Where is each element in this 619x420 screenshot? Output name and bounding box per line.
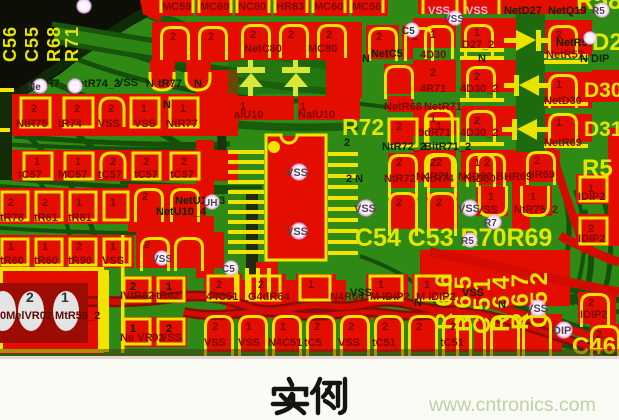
svg-text:NetR69: NetR69 — [544, 137, 582, 149]
svg-text:1: 1 — [34, 156, 40, 168]
svg-text:2: 2 — [8, 197, 14, 209]
svg-text:tC57: tC57 — [170, 169, 194, 181]
svg-text:2: 2 — [474, 71, 480, 83]
svg-text:G4dR64: G4dR64 — [248, 291, 290, 303]
svg-text:NetD30: NetD30 — [544, 95, 582, 107]
svg-text:BitR71_2: BitR71_2 — [424, 141, 471, 153]
svg-text:1: 1 — [488, 191, 494, 203]
svg-text:1: 1 — [61, 289, 69, 305]
svg-text:2: 2 — [416, 321, 422, 333]
svg-text:VSS: VSS — [466, 5, 488, 17]
svg-text:VSS: VSS — [116, 77, 138, 89]
svg-text:2: 2 — [436, 197, 442, 209]
svg-text:1: 1 — [166, 281, 172, 293]
svg-text:NtR75_2: NtR75_2 — [514, 204, 558, 216]
svg-text:tC57: tC57 — [134, 169, 158, 181]
svg-text:VSS: VSS — [350, 287, 372, 299]
svg-text:2 N: 2 N — [346, 173, 363, 185]
svg-text:UH: UH — [203, 198, 217, 209]
svg-text:VSS: VSS — [102, 255, 124, 267]
svg-text:9dR71: 9dR71 — [418, 127, 451, 139]
svg-text:IDIP2: IDIP2 — [578, 191, 606, 203]
svg-text:4D30_2: 4D30_2 — [460, 127, 499, 139]
svg-text:1: 1 — [430, 113, 436, 125]
svg-text:2: 2 — [74, 103, 80, 115]
svg-text:NtR72: NtR72 — [384, 173, 416, 185]
svg-text:C54 C53 R70R69: C54 C53 R70R69 — [355, 224, 552, 252]
svg-text:M IDIP2: M IDIP2 — [370, 291, 410, 303]
svg-text:4D30_2: 4D30_2 — [460, 83, 499, 95]
svg-text:1: 1 — [280, 321, 286, 333]
svg-text:Ne: Ne — [28, 82, 41, 93]
svg-text:2: 2 — [396, 197, 402, 209]
svg-text:HR83: HR83 — [276, 1, 304, 13]
svg-text:2: 2 — [181, 156, 187, 168]
svg-text:tR77: tR77 — [158, 78, 182, 90]
svg-text:NetR68: NetR68 — [384, 101, 422, 113]
svg-text:2: 2 — [258, 279, 264, 291]
svg-text:1: 1 — [141, 103, 147, 115]
svg-text:N4D30: N4D30 — [458, 171, 492, 183]
svg-text:2: 2 — [108, 103, 114, 115]
svg-text:D27_2: D27_2 — [462, 39, 494, 51]
svg-text:VSS: VSS — [286, 167, 308, 179]
svg-text:D2: D2 — [592, 29, 619, 56]
svg-text:2: 2 — [430, 67, 436, 79]
svg-text:MC59: MC59 — [162, 1, 191, 13]
svg-text:1: 1 — [530, 191, 536, 203]
svg-text:N: N — [194, 78, 202, 90]
svg-text:2: 2 — [348, 321, 354, 333]
svg-text:R71: R71 — [62, 26, 82, 62]
svg-text:NetU10_4: NetU10_4 — [156, 206, 207, 218]
svg-text:2: 2 — [288, 29, 294, 41]
svg-text:2: 2 — [376, 31, 382, 43]
svg-text:NtR77: NtR77 — [166, 118, 198, 130]
svg-text:N4C51: N4C51 — [268, 337, 302, 349]
svg-text:C55: C55 — [22, 26, 42, 62]
svg-text:tC57: tC57 — [98, 169, 122, 181]
svg-text:MC60: MC60 — [200, 1, 229, 13]
svg-text:tC51: tC51 — [440, 337, 464, 349]
svg-text:NetR57: NetR57 — [546, 49, 584, 61]
svg-text:1: 1 — [474, 27, 480, 39]
svg-text:VSS: VSS — [286, 226, 308, 238]
svg-text:N: N — [478, 53, 486, 65]
svg-text:R5: R5 — [582, 155, 613, 182]
svg-text:2: 2 — [42, 197, 48, 209]
svg-text:1: 1 — [308, 279, 314, 291]
svg-text:2: 2 — [450, 321, 456, 333]
svg-text:alU10: alU10 — [234, 109, 263, 121]
svg-text:tC51: tC51 — [372, 337, 396, 349]
svg-text:2: 2 — [474, 115, 480, 127]
svg-text:NetQ19: NetQ19 — [548, 5, 587, 17]
svg-text:C5: C5 — [222, 264, 235, 275]
svg-text:2: 2 — [76, 241, 82, 253]
svg-text:tR81: tR81 — [34, 212, 58, 224]
svg-text:1: 1 — [246, 321, 252, 333]
svg-text:NetC5: NetC5 — [371, 48, 403, 60]
svg-text:2: 2 — [436, 157, 442, 169]
svg-text:tC5: tC5 — [304, 337, 322, 349]
svg-text:tR60: tR60 — [34, 255, 58, 267]
svg-text:VSS: VSS — [238, 337, 260, 349]
svg-text:2: 2 — [344, 137, 350, 149]
svg-text:N: N — [498, 299, 506, 311]
svg-text:VSS: VSS — [462, 287, 484, 299]
svg-text:2: 2 — [208, 31, 214, 43]
svg-text:44C51: 44C51 — [206, 291, 238, 303]
svg-text:VSS: VSS — [152, 254, 172, 265]
svg-text:2: 2 — [596, 329, 602, 341]
svg-text:2: 2 — [430, 157, 436, 169]
svg-text:NalU10: NalU10 — [298, 109, 335, 121]
svg-text:2: 2 — [484, 157, 490, 169]
svg-text:1: 1 — [75, 156, 81, 168]
svg-text:2: 2 — [143, 156, 149, 168]
svg-text:MC80: MC80 — [308, 43, 337, 55]
svg-text:2: 2 — [396, 121, 402, 133]
svg-text:2: 2 — [31, 103, 37, 115]
svg-text:2: 2 — [170, 31, 176, 43]
svg-text:tC57: tC57 — [18, 169, 42, 181]
svg-text:MC60: MC60 — [314, 1, 343, 13]
svg-text:tiR69: tiR69 — [528, 169, 555, 181]
svg-text:2: 2 — [216, 279, 222, 291]
svg-text:1: 1 — [110, 197, 116, 209]
svg-text:IVtR62: IVtR62 — [120, 290, 154, 302]
svg-text:IDIP2: IDIP2 — [578, 233, 606, 245]
svg-text:R5: R5 — [592, 6, 605, 17]
svg-text:2: 2 — [314, 321, 320, 333]
svg-text:VSS: VSS — [98, 118, 120, 130]
svg-text:1: 1 — [474, 157, 480, 169]
svg-text:VSS: VSS — [354, 203, 376, 215]
svg-text:2: 2 — [534, 155, 540, 167]
svg-text:1: 1 — [76, 197, 82, 209]
svg-text:www.cntronics.com: www.cntronics.com — [428, 394, 596, 416]
svg-text:NetD27: NetD27 — [504, 5, 542, 17]
svg-text:tR74: tR74 — [58, 118, 83, 130]
svg-text:N: N — [414, 297, 422, 309]
svg-text:2: 2 — [26, 289, 34, 305]
svg-text:NtR75: NtR75 — [16, 118, 48, 130]
svg-text:2: 2 — [396, 157, 402, 169]
svg-text:BHR69: BHR69 — [496, 171, 532, 183]
svg-text:R7: R7 — [484, 218, 497, 229]
svg-text:2: 2 — [142, 191, 148, 203]
svg-text:MC56: MC56 — [352, 1, 381, 13]
svg-text:VSS: VSS — [444, 14, 464, 25]
svg-text:tR78: tR78 — [0, 212, 24, 224]
svg-text:IDIP2: IDIP2 — [580, 309, 608, 321]
svg-text:1: 1 — [556, 117, 562, 129]
svg-text:Ne VR02: Ne VR02 — [120, 332, 165, 344]
svg-text:0MelVR02 MtR59_2: 0MelVR02 MtR59_2 — [0, 310, 100, 322]
svg-text:N4R71: N4R71 — [416, 171, 450, 183]
svg-text:NetC80: NetC80 — [244, 43, 282, 55]
svg-text:1: 1 — [110, 241, 116, 253]
svg-text:2: 2 — [588, 297, 594, 309]
svg-text:1: 1 — [424, 279, 430, 291]
svg-text:N DIP: N DIP — [580, 53, 609, 65]
svg-text:N: N — [163, 99, 171, 111]
svg-text:1: 1 — [130, 323, 136, 335]
svg-text:2: 2 — [250, 29, 256, 41]
svg-text:C52: C52 — [526, 266, 553, 328]
svg-text:VSS: VSS — [134, 118, 156, 130]
svg-text:D31: D31 — [584, 118, 619, 141]
svg-text:tR81: tR81 — [68, 212, 92, 224]
svg-text:1: 1 — [430, 29, 436, 41]
svg-text:1: 1 — [378, 279, 384, 291]
svg-text:NtR72_2: NtR72_2 — [382, 141, 426, 153]
svg-text:VSS: VSS — [338, 337, 360, 349]
svg-text:C5: C5 — [402, 26, 415, 37]
svg-text:M IDIP2: M IDIP2 — [416, 291, 456, 303]
svg-text:4R71: 4R71 — [420, 83, 446, 95]
svg-text:4D30: 4D30 — [420, 49, 446, 61]
svg-text:tR90: tR90 — [68, 255, 92, 267]
svg-text:2: 2 — [130, 281, 136, 293]
svg-text:VSS: VSS — [458, 203, 480, 215]
svg-text:tR60: tR60 — [0, 255, 24, 267]
svg-text:DIP: DIP — [553, 325, 571, 337]
svg-text:1: 1 — [556, 79, 562, 91]
svg-text:NC80: NC80 — [238, 1, 266, 13]
svg-text:2: 2 — [144, 239, 150, 251]
svg-text:2: 2 — [382, 321, 388, 333]
svg-text:VSS: VSS — [204, 337, 226, 349]
svg-text:N: N — [362, 53, 370, 65]
svg-text:2: 2 — [166, 323, 172, 335]
svg-text:2: 2 — [110, 156, 116, 168]
svg-text:1: 1 — [180, 103, 186, 115]
svg-text:2: 2 — [326, 29, 332, 41]
svg-text:N: N — [146, 78, 154, 90]
svg-text:NetR71: NetR71 — [424, 101, 462, 113]
svg-text:R68: R68 — [44, 26, 64, 62]
svg-text:1: 1 — [42, 241, 48, 253]
svg-text:1: 1 — [8, 241, 14, 253]
svg-text:C56: C56 — [0, 26, 20, 62]
svg-text:VSS: VSS — [526, 303, 548, 315]
svg-text:2: 2 — [212, 321, 218, 333]
svg-text:D30: D30 — [584, 79, 619, 102]
svg-text:R5: R5 — [461, 236, 474, 247]
svg-text:MC57: MC57 — [58, 169, 87, 181]
